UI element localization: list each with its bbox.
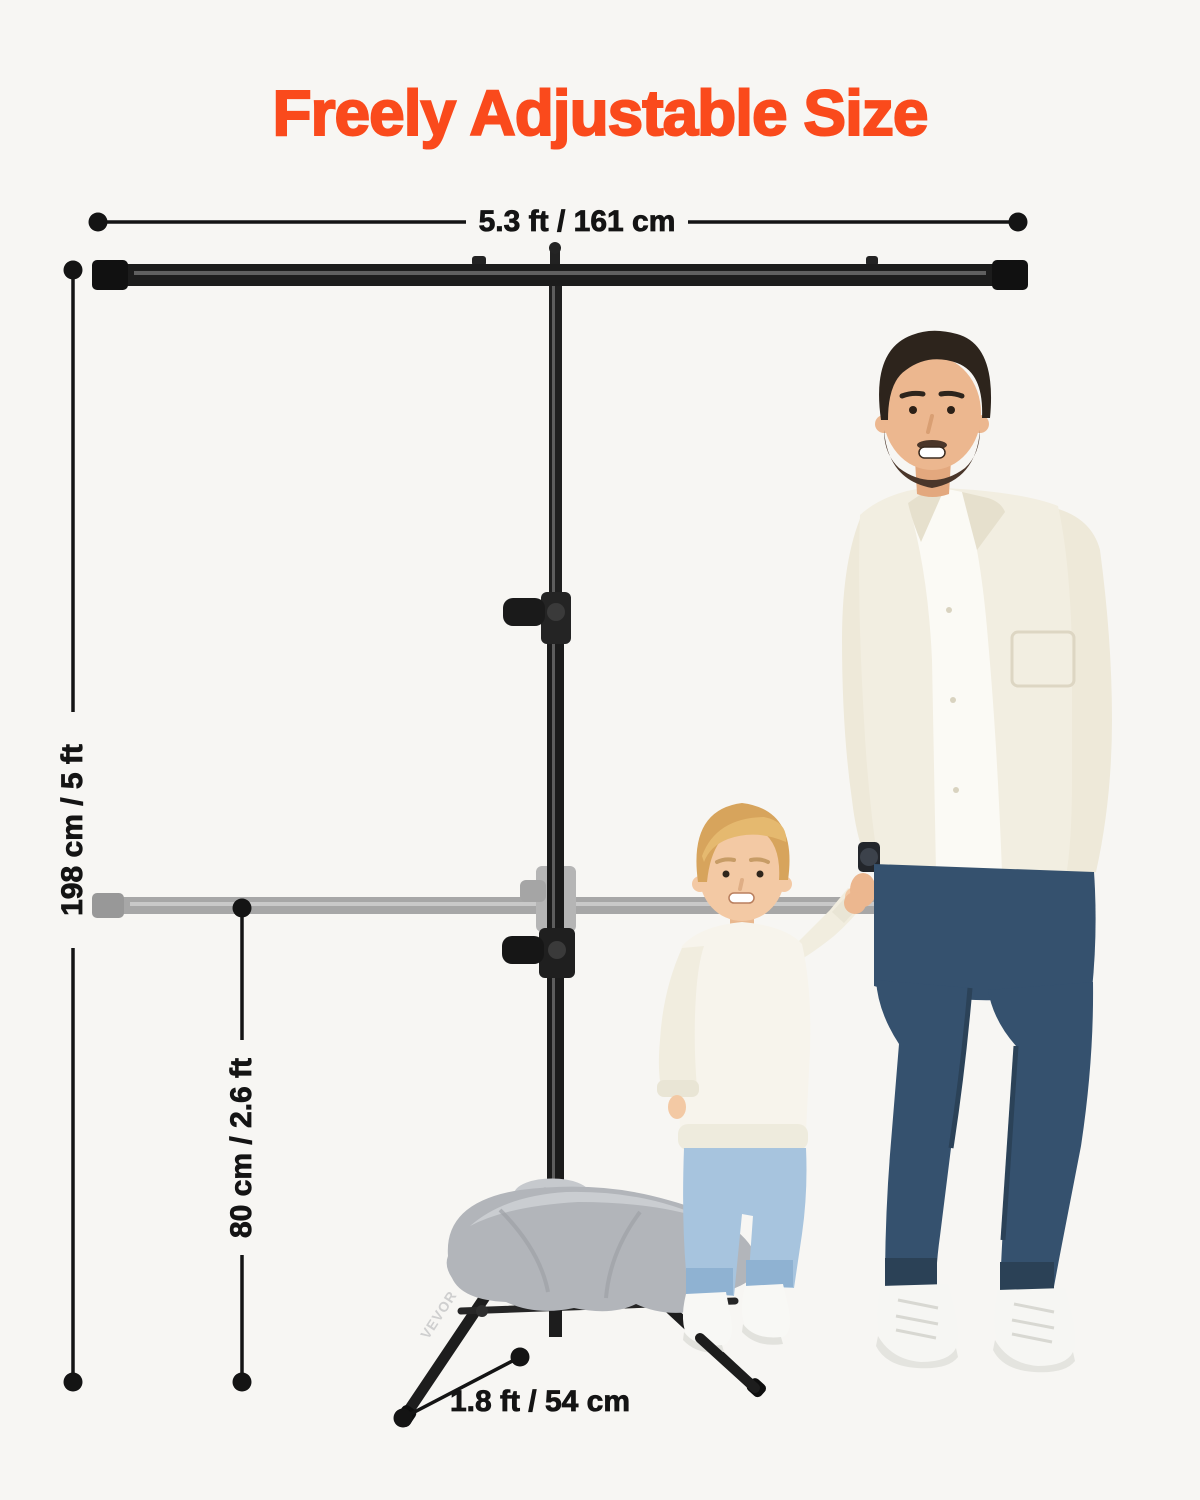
product-infographic: Freely Adjustable Size: [0, 0, 1200, 1500]
brand-label: VEVOR: [417, 1288, 460, 1342]
stand-crossbar: [92, 242, 1028, 290]
tripod-leg-right-front: [700, 1338, 755, 1388]
stand-pole-lower: [547, 610, 564, 1210]
pole-clamp-knob-lower: [502, 928, 575, 978]
stand-pole-upper: [549, 272, 562, 622]
child-figure: [657, 803, 866, 1353]
label-max-height: 198 cm / 5 ft: [56, 744, 90, 916]
label-leg-length: 1.8 ft / 54 cm: [450, 1385, 630, 1419]
label-crossbar-width: 5.3 ft / 161 cm: [479, 205, 676, 239]
man-jeans: [874, 864, 1096, 1000]
pole-clamp-knob-upper: [503, 592, 571, 644]
man-figure: [842, 331, 1112, 1373]
label-min-height: 80 cm / 2.6 ft: [225, 1058, 259, 1238]
